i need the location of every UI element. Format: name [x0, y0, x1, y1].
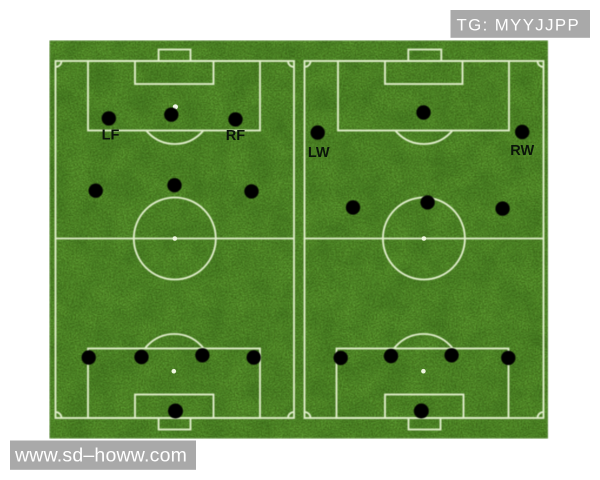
svg-text:TG: MYYJJPP: TG: MYYJJPP: [457, 15, 581, 34]
svg-text:RW: RW: [510, 143, 534, 159]
svg-text:RF: RF: [226, 128, 245, 144]
svg-text:LW: LW: [308, 145, 330, 161]
svg-text:www.sd–howw.com: www.sd–howw.com: [14, 445, 187, 467]
svg-text:LF: LF: [102, 128, 120, 144]
